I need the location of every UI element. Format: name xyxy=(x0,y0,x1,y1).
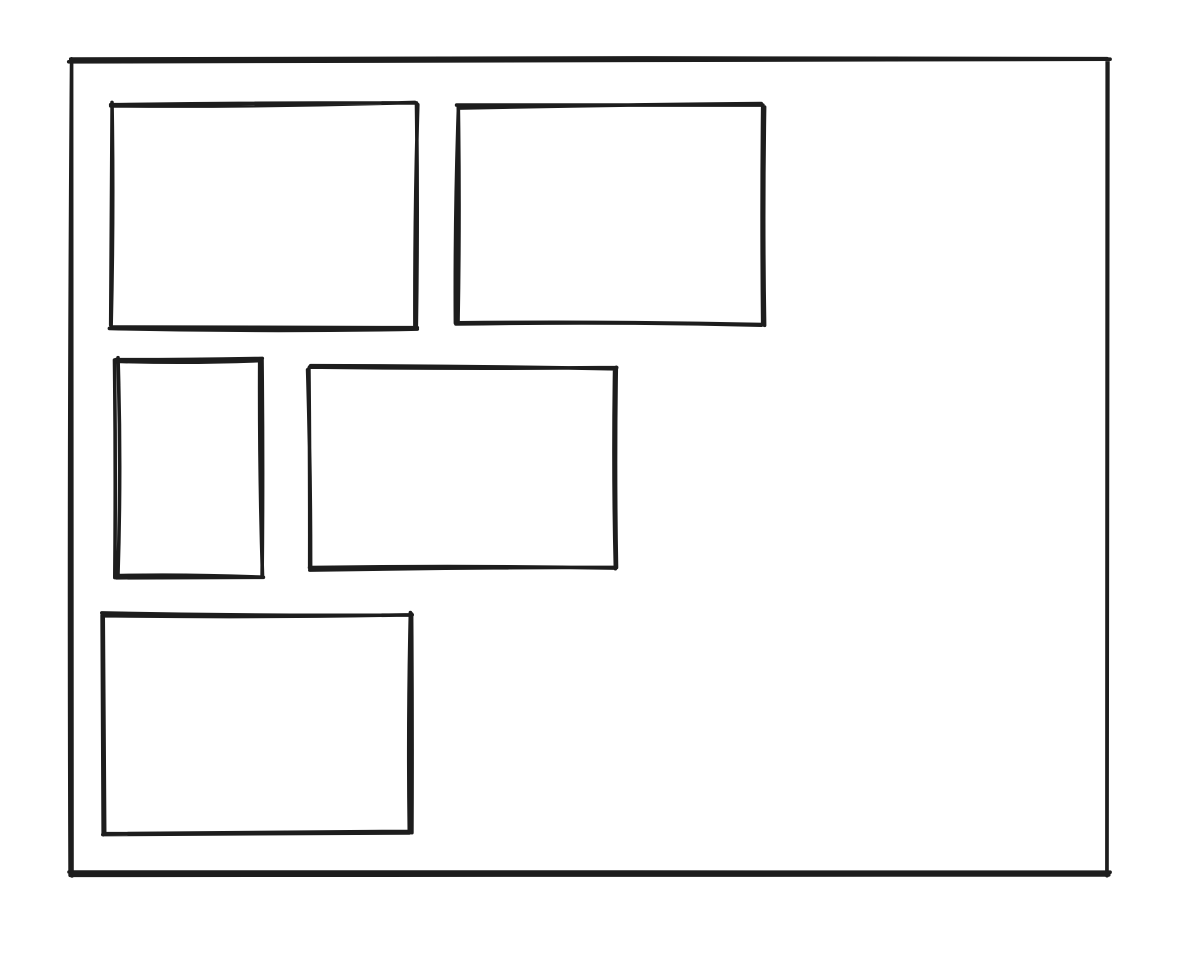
box-bottom-left-shape[interactable] xyxy=(102,613,412,835)
box-middle-center-shape[interactable] xyxy=(308,366,617,570)
box-top-right-shape[interactable] xyxy=(455,104,764,326)
sketch-canvas[interactable] xyxy=(0,0,1192,956)
box-middle-left-shape[interactable] xyxy=(115,358,264,578)
drawing-canvas[interactable] xyxy=(0,0,1192,956)
outer-frame-shape[interactable] xyxy=(69,58,1110,876)
box-top-left-shape[interactable] xyxy=(109,102,417,330)
